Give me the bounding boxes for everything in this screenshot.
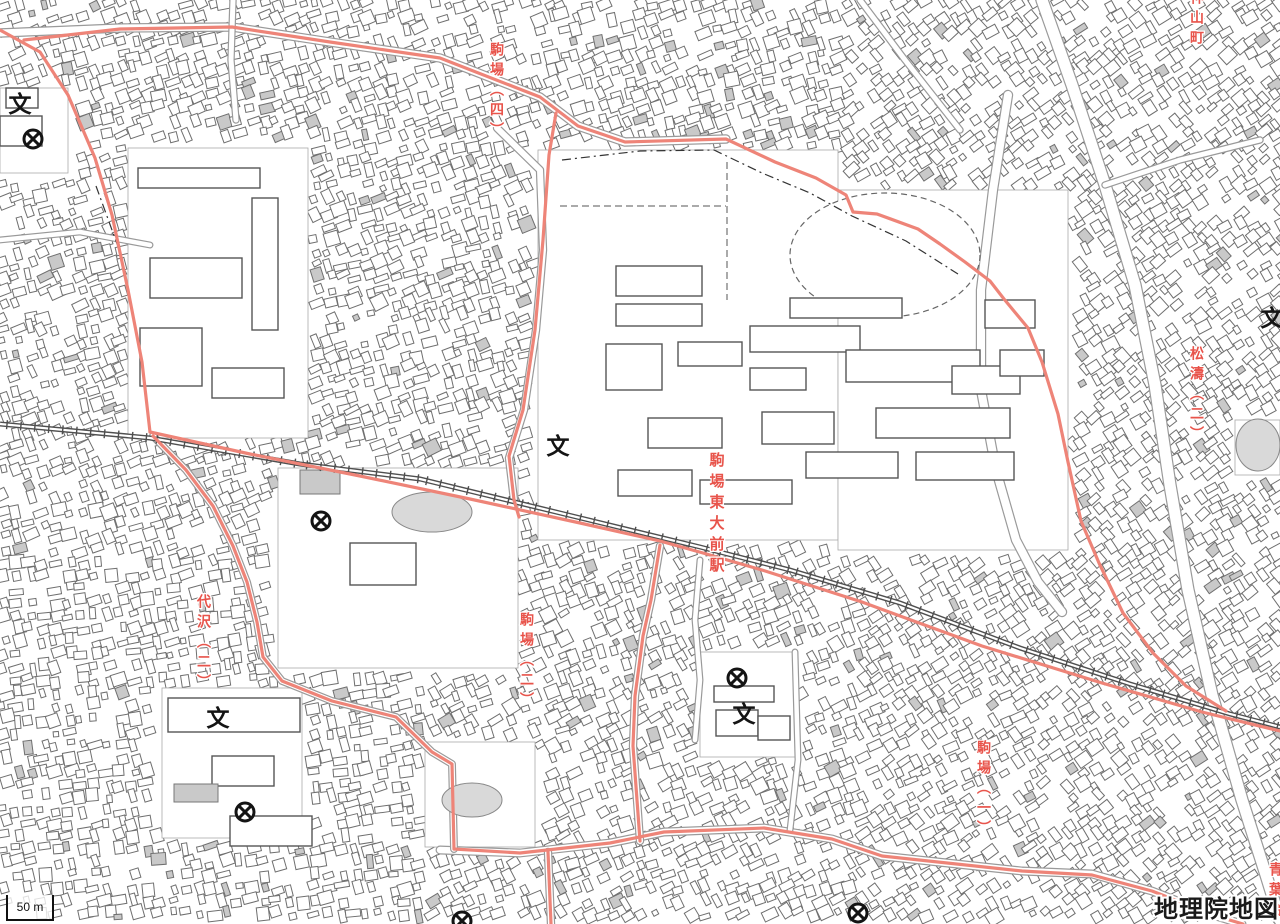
police-station-icon	[236, 803, 254, 821]
scale-bar: 50 m	[6, 895, 54, 921]
police-station-icon	[849, 904, 867, 922]
place-label-kamiyamacho: 神山町	[1189, 0, 1205, 50]
school-icon: 文	[733, 701, 757, 727]
map-canvas[interactable]: 文文文文文 駒場（四）神山町松濤（二）駒場東大前駅代沢（二）駒場（二）駒場（一）…	[0, 0, 1280, 924]
place-label-daizawa-2: 代沢（二）	[196, 593, 212, 694]
police-station-icon	[453, 912, 471, 924]
map-viewport: 文文文文文 駒場（四）神山町松濤（二）駒場東大前駅代沢（二）駒場（二）駒場（一）…	[0, 0, 1280, 924]
attribution-link[interactable]: 地理院地図	[1154, 889, 1279, 924]
place-label-komaba-1: 駒場（一）	[976, 739, 992, 840]
place-label-komaba-4: 駒場（四）	[489, 41, 505, 142]
school-icon: 文	[547, 433, 571, 459]
school-icon: 文	[9, 91, 33, 117]
police-station-icon	[24, 130, 42, 148]
school-icon: 文	[207, 705, 231, 731]
place-label-shoto-2: 松濤（二）	[1189, 345, 1205, 446]
police-station-icon	[728, 669, 746, 687]
school-icon: 文	[1261, 305, 1280, 331]
police-station-icon	[312, 512, 330, 530]
scale-bar-label: 50 m	[17, 901, 44, 913]
place-label-komaba-todaimae-station: 駒場東大前駅	[708, 451, 726, 578]
place-label-komaba-2: 駒場（二）	[519, 611, 535, 712]
